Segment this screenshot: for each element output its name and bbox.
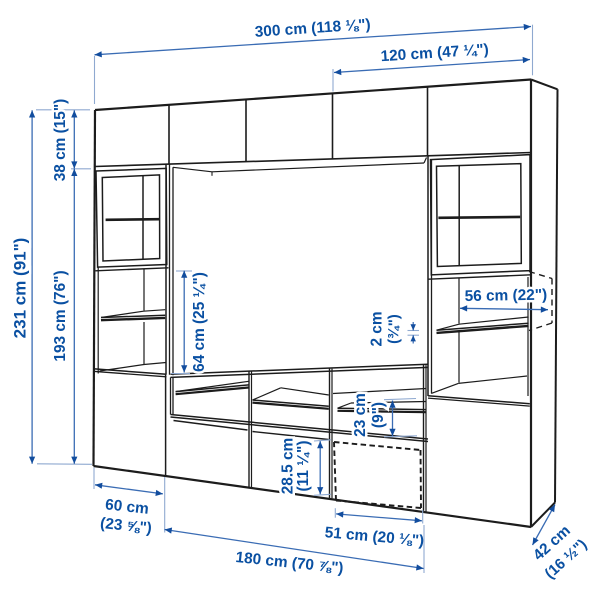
svg-text:(¾"): (¾") bbox=[386, 314, 403, 344]
svg-text:193 cm (76"): 193 cm (76") bbox=[52, 270, 69, 361]
svg-text:(9"): (9") bbox=[370, 402, 387, 428]
svg-text:231 cm (91"): 231 cm (91") bbox=[11, 238, 30, 339]
svg-text:2 cm: 2 cm bbox=[369, 311, 386, 346]
svg-text:56 cm (22"): 56 cm (22") bbox=[464, 287, 547, 305]
svg-text:28.5 cm: 28.5 cm bbox=[280, 438, 297, 494]
svg-text:64 cm (25 ¼"): 64 cm (25 ¼") bbox=[191, 272, 208, 372]
svg-text:(11 ¼"): (11 ¼") bbox=[295, 441, 312, 492]
svg-text:23 cm: 23 cm bbox=[352, 393, 369, 437]
svg-text:38 cm (15"): 38 cm (15") bbox=[52, 99, 69, 182]
